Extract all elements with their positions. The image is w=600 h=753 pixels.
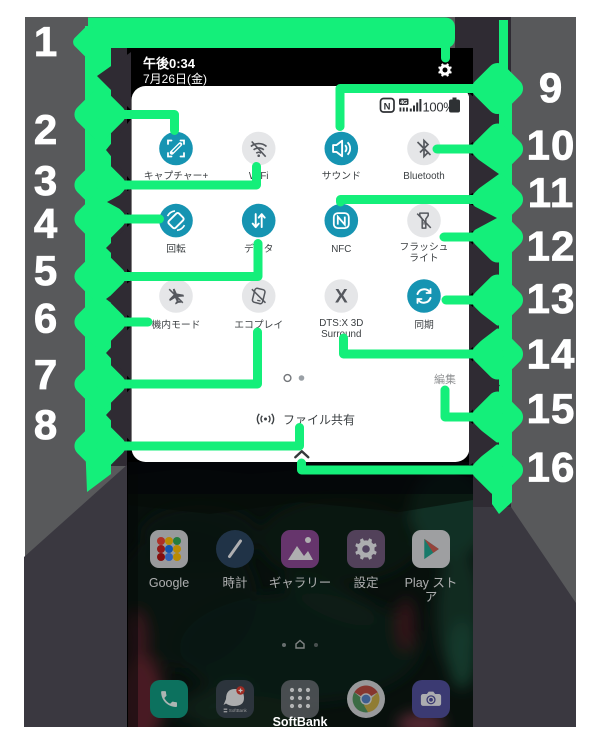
svg-text:フラッシュ: フラッシュ xyxy=(400,241,449,253)
svg-text:同期: 同期 xyxy=(414,319,434,331)
svg-text:NFC: NFC xyxy=(331,244,351,255)
svg-text:ライト: ライト xyxy=(409,252,438,264)
svg-text:7: 7 xyxy=(34,351,58,398)
svg-text:1: 1 xyxy=(34,18,58,65)
svg-text:8: 8 xyxy=(34,401,58,448)
svg-text:機内モード: 機内モード xyxy=(152,318,201,331)
svg-text:Bluetooth: Bluetooth xyxy=(403,171,444,182)
svg-text:回転: 回転 xyxy=(166,243,186,255)
svg-text:ファイル共有: ファイル共有 xyxy=(283,413,355,427)
svg-text:サウンド: サウンド xyxy=(322,170,361,182)
svg-text:6: 6 xyxy=(34,295,58,342)
svg-text:4: 4 xyxy=(34,200,58,247)
svg-text:11: 11 xyxy=(528,169,574,216)
svg-text:SoftBank: SoftBank xyxy=(273,715,328,729)
svg-text:編集: 編集 xyxy=(434,372,456,386)
svg-text:5: 5 xyxy=(34,247,58,294)
svg-text:15: 15 xyxy=(527,385,576,432)
svg-text:7月26日(金): 7月26日(金) xyxy=(143,71,207,86)
svg-text:9: 9 xyxy=(539,64,563,111)
svg-text:午後0:34: 午後0:34 xyxy=(143,56,196,71)
svg-text:12: 12 xyxy=(527,223,576,270)
svg-text:3: 3 xyxy=(34,157,58,204)
svg-text:N: N xyxy=(384,102,391,113)
svg-text:13: 13 xyxy=(527,275,576,322)
svg-text:10: 10 xyxy=(527,122,576,169)
svg-text:14: 14 xyxy=(527,331,576,378)
svg-text:16: 16 xyxy=(527,444,576,491)
svg-text:X: X xyxy=(335,287,348,308)
svg-text:4G: 4G xyxy=(400,100,407,106)
svg-text:2: 2 xyxy=(34,106,58,153)
svg-text:キャプチャー+: キャプチャー+ xyxy=(144,170,209,182)
svg-text:DTS:X 3D: DTS:X 3D xyxy=(319,318,363,329)
